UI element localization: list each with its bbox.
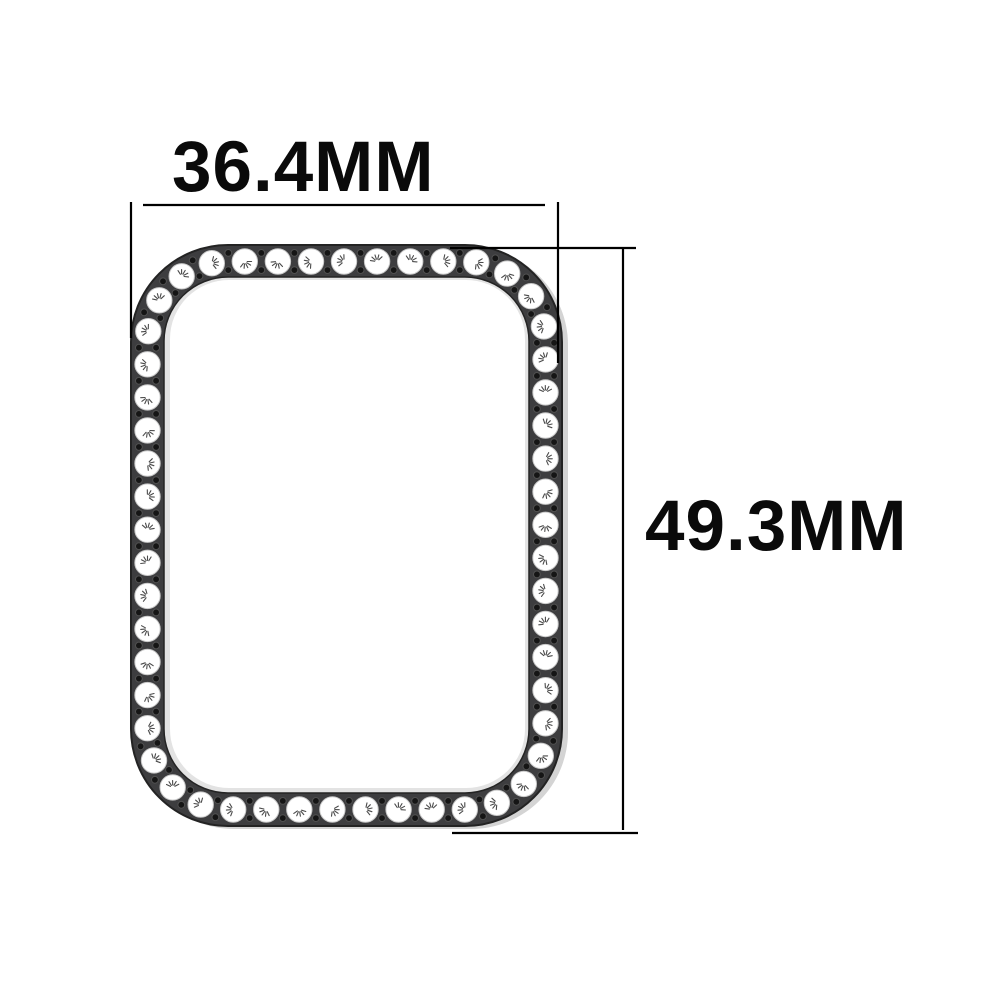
bezel-stone	[135, 716, 160, 741]
bezel-hole	[480, 813, 487, 820]
stone-sparkle-facet	[300, 812, 301, 816]
stone-sparkle-facet	[370, 261, 374, 262]
bezel-hole	[412, 815, 419, 822]
bezel-hole	[390, 250, 397, 257]
bezel-hole	[225, 267, 232, 274]
bezel-stone	[533, 678, 558, 703]
bezel-hole	[357, 267, 364, 274]
bezel-hole	[534, 538, 541, 545]
bezel-stone	[431, 249, 456, 274]
stone-sparkle-facet	[425, 808, 429, 809]
bezel-hole	[551, 637, 558, 644]
bezel-hole	[153, 642, 160, 649]
bezel-hole	[137, 743, 144, 750]
bezel-stone	[135, 682, 160, 707]
bezel-stone	[169, 264, 194, 289]
bezel-hole	[492, 255, 499, 262]
bezel-hole	[154, 740, 161, 747]
stone-sparkle-facet	[148, 400, 149, 404]
bezel-stone	[135, 616, 160, 641]
bezel-hole	[551, 703, 558, 710]
bezel-hole	[187, 787, 194, 794]
bezel-hole	[136, 708, 143, 715]
bezel-hole	[551, 373, 558, 380]
bezel-stone	[287, 797, 312, 822]
bezel-hole	[189, 257, 196, 264]
bezel-hole	[523, 274, 530, 281]
bezel-hole	[153, 675, 160, 682]
bezel-stone	[135, 583, 160, 608]
bezel-stone	[188, 792, 213, 817]
bezel-stone	[419, 797, 444, 822]
bezel-hole	[258, 250, 265, 257]
bezel-hole	[544, 304, 551, 311]
bezel-hole	[153, 477, 160, 484]
stone-sparkle-facet	[539, 590, 543, 591]
bezel-stone	[464, 250, 489, 275]
bezel-stone	[533, 347, 558, 372]
bezel-hole	[153, 609, 160, 616]
bezel-hole	[486, 271, 493, 278]
bezel-hole	[528, 311, 535, 318]
bezel-hole	[160, 278, 167, 285]
bezel-hole	[196, 273, 203, 280]
stone-sparkle-facet	[266, 812, 267, 816]
bezel-hole	[346, 798, 353, 805]
bezel-hole	[513, 798, 520, 805]
bezel-hole	[153, 576, 160, 583]
bezel-hole	[279, 815, 286, 822]
bezel-stone	[533, 446, 558, 471]
bezel-hole	[153, 344, 160, 351]
bezel-stone	[135, 451, 160, 476]
bezel-hole	[212, 814, 219, 821]
bezel-hole	[511, 287, 518, 294]
bezel-hole	[503, 784, 510, 791]
stone-sparkle-facet	[539, 624, 543, 625]
bezel-stone	[320, 797, 345, 822]
bezel-stone	[254, 797, 279, 822]
bezel-hole	[534, 339, 541, 346]
bezel-stone	[135, 385, 160, 410]
bezel-stone	[386, 797, 411, 822]
bezel-stone	[533, 578, 558, 603]
bezel-hole	[534, 670, 541, 677]
bezel-hole	[445, 798, 452, 805]
stone-sparkle-facet	[332, 812, 333, 816]
bezel-stone	[135, 352, 160, 377]
bezel-hole	[551, 439, 558, 446]
bezel-hole	[136, 344, 143, 351]
bezel-hole	[523, 763, 530, 770]
bezel-hole	[172, 290, 179, 297]
bezel-hole	[246, 798, 253, 805]
bezel-stone	[533, 611, 558, 636]
bezel-stone	[265, 249, 290, 274]
bezel-hole	[153, 377, 160, 384]
bezel-stone	[160, 775, 185, 800]
bezel-stone	[511, 771, 536, 796]
stone-sparkle-facet	[546, 494, 547, 498]
stone-sparkle-facet	[537, 327, 541, 328]
bezel-stone	[533, 479, 558, 504]
bezel-hole	[136, 377, 143, 384]
bezel-hole	[153, 510, 160, 517]
bezel-hole	[390, 267, 397, 274]
bezel-stone	[533, 413, 558, 438]
bezel-stone	[141, 748, 166, 773]
bezel-hole	[215, 797, 222, 804]
bezel-stone	[533, 644, 558, 669]
bezel-hole	[551, 604, 558, 611]
stone-sparkle-facet	[476, 265, 477, 269]
bezel-hole	[534, 406, 541, 413]
bezel-hole	[551, 505, 558, 512]
bezel-hole	[153, 411, 160, 418]
bezel-hole	[225, 250, 232, 257]
bezel-hole	[357, 250, 364, 257]
bezel-hole	[153, 708, 160, 715]
bezel-stone	[147, 288, 172, 313]
bezel-hole	[551, 339, 558, 346]
product-dimension-diagram: 36.4MM 49.3MM	[0, 0, 1000, 1000]
bezel-hole	[423, 250, 430, 257]
bezel-hole	[136, 444, 143, 451]
bezel-stone	[199, 251, 224, 276]
bezel-hole	[534, 439, 541, 446]
bezel-hole	[456, 267, 463, 274]
bezel-stone	[452, 797, 477, 822]
stone-sparkle-facet	[540, 758, 541, 762]
bezel-hole	[313, 815, 320, 822]
bezel-stone	[136, 319, 161, 344]
bezel-hole	[152, 776, 159, 783]
stone-sparkle-facet	[148, 698, 149, 702]
bezel-hole	[551, 406, 558, 413]
bezel-interior	[170, 280, 525, 788]
bezel-hole	[324, 267, 331, 274]
bezel-stone	[364, 249, 389, 274]
bezel-stone	[135, 418, 160, 443]
bezel-stone	[135, 517, 160, 542]
bezel-hole	[379, 815, 386, 822]
bezel-stone	[353, 797, 378, 822]
bezel-stone	[331, 249, 356, 274]
bezel-stone	[398, 249, 423, 274]
stone-sparkle-facet	[524, 786, 525, 790]
bezel-stone	[533, 380, 558, 405]
bezel-hole	[178, 801, 185, 808]
bezel-hole	[445, 815, 452, 822]
bezel-stone	[528, 743, 553, 768]
bezel-stone	[484, 790, 509, 815]
bezel-hole	[246, 815, 253, 822]
stone-sparkle-facet	[194, 804, 198, 805]
bezel-hole	[279, 798, 286, 805]
bezel-hole	[141, 309, 148, 316]
bezel-hole	[533, 735, 540, 742]
bezel-stone	[298, 249, 323, 274]
bezel-hole	[153, 444, 160, 451]
stone-sparkle-facet	[141, 563, 145, 564]
bezel-hole	[324, 250, 331, 257]
bezel-hole	[291, 250, 298, 257]
stone-sparkle-facet	[337, 262, 341, 263]
bezel-hole	[346, 815, 353, 822]
bezel-hole	[412, 798, 419, 805]
bezel-hole	[551, 538, 558, 545]
bezel-hole	[136, 642, 143, 649]
stone-sparkle-facet	[147, 433, 148, 437]
bezel-hole	[136, 609, 143, 616]
bezel-stone	[533, 711, 558, 736]
bezel-hole	[313, 798, 320, 805]
bezel-stone	[531, 314, 556, 339]
bezel-hole	[136, 675, 143, 682]
bezel-stone	[533, 545, 558, 570]
bezel-hole	[534, 505, 541, 512]
bezel-stone	[221, 797, 246, 822]
bezel-hole	[534, 604, 541, 611]
bezel-hole	[551, 472, 558, 479]
bezel-hole	[534, 637, 541, 644]
bezel-hole	[136, 543, 143, 550]
stone-sparkle-facet	[539, 358, 543, 359]
watch-case-bezel	[131, 245, 568, 829]
bezel-hole	[534, 571, 541, 578]
bezel-stone	[533, 512, 558, 537]
bezel-hole	[258, 267, 265, 274]
bezel-hole	[538, 772, 545, 779]
bezel-hole	[551, 670, 558, 677]
bezel-hole	[379, 798, 386, 805]
bezel-hole	[157, 315, 164, 322]
bezel-hole	[166, 767, 173, 774]
bezel-hole	[153, 543, 160, 550]
bezel-stone	[135, 649, 160, 674]
stone-sparkle-facet	[546, 726, 547, 730]
bezel-stone	[135, 550, 160, 575]
bezel-hole	[534, 373, 541, 380]
bezel-hole	[456, 250, 463, 257]
bezel-hole	[550, 738, 557, 745]
bezel-hole	[291, 267, 298, 274]
bezel-hole	[136, 576, 143, 583]
bezel-hole	[551, 571, 558, 578]
bezel-hole	[534, 703, 541, 710]
bezel-hole	[534, 472, 541, 479]
stone-sparkle-facet	[148, 466, 149, 470]
bezel-hole	[423, 267, 430, 274]
bezel-stone	[232, 249, 257, 274]
bezel-stone	[518, 284, 543, 309]
bezel-stone	[135, 484, 160, 509]
stone-sparkle-facet	[147, 664, 148, 668]
bezel-hole	[136, 477, 143, 484]
bezel-hole	[136, 411, 143, 418]
bezel-stone	[495, 261, 520, 286]
bezel-hole	[476, 796, 483, 803]
bezel-hole	[136, 510, 143, 517]
